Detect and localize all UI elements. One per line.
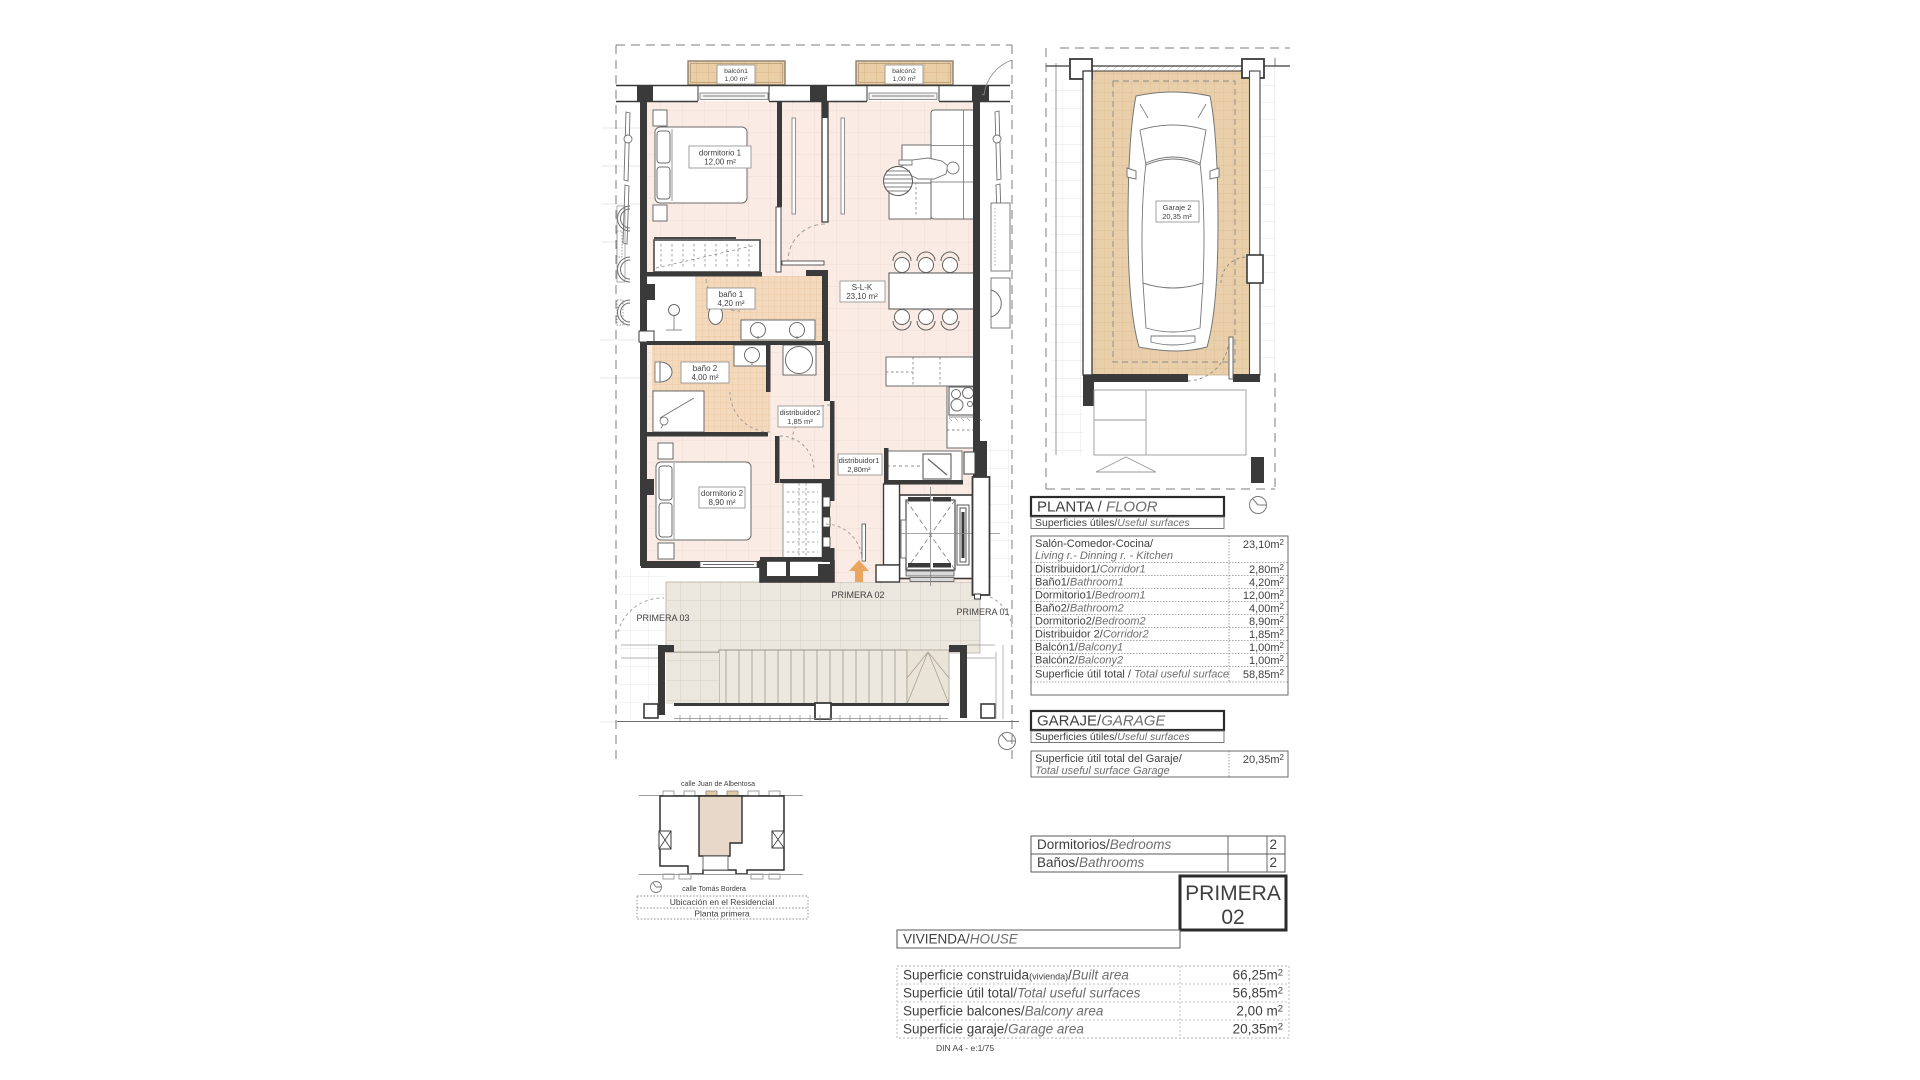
svg-text:calle Tomás Bordera: calle Tomás Bordera — [682, 886, 746, 893]
svg-text:Dormitorio1/Bedroom1: Dormitorio1/Bedroom1 — [1035, 590, 1146, 602]
svg-text:Salón-Comedor-Cocina/: Salón-Comedor-Cocina/ — [1035, 538, 1154, 550]
svg-text:Balcón1/Balcony1: Balcón1/Balcony1 — [1035, 642, 1123, 654]
svg-text:dormitorio 1: dormitorio 1 — [699, 149, 742, 158]
svg-text:Superficie útil total/Total us: Superficie útil total/Total useful surfa… — [903, 986, 1141, 1001]
svg-text:Balcón2/Balcony2: Balcón2/Balcony2 — [1035, 655, 1123, 667]
svg-text:Dormitorio2/Bedroom2: Dormitorio2/Bedroom2 — [1035, 616, 1146, 628]
svg-text:Distribuidor1/Corridor1: Distribuidor1/Corridor1 — [1035, 564, 1146, 576]
svg-text:23,10 m²: 23,10 m² — [846, 292, 878, 301]
svg-text:baño 1: baño 1 — [719, 290, 744, 299]
svg-text:1,85 m²: 1,85 m² — [787, 417, 813, 426]
svg-text:GARAJE/GARAGE: GARAJE/GARAGE — [1037, 713, 1166, 730]
svg-text:4,20m2: 4,20m2 — [1249, 576, 1285, 589]
svg-text:66,25m2: 66,25m2 — [1233, 968, 1283, 983]
svg-text:Superficie útil total / Total: Superficie útil total / Total useful sur… — [1035, 669, 1229, 681]
svg-text:8,90 m²: 8,90 m² — [708, 498, 735, 507]
svg-text:02: 02 — [1221, 906, 1244, 929]
svg-text:Living r.- Dinning r. - Kitche: Living r.- Dinning r. - Kitchen — [1035, 550, 1173, 562]
svg-text:PRIMERA 02: PRIMERA 02 — [831, 590, 884, 600]
svg-text:calle Juan de Albentosa: calle Juan de Albentosa — [681, 781, 755, 788]
svg-text:56,85m2: 56,85m2 — [1233, 986, 1283, 1001]
svg-text:Total useful surface Garage: Total useful surface Garage — [1035, 765, 1170, 777]
svg-text:S-L-K: S-L-K — [852, 283, 873, 292]
svg-text:Dormitorios/Bedrooms: Dormitorios/Bedrooms — [1037, 837, 1172, 852]
svg-text:Baños/Bathrooms: Baños/Bathrooms — [1037, 855, 1145, 870]
svg-text:1,00m2: 1,00m2 — [1249, 641, 1285, 654]
svg-text:Superficie balcones/Balcony ar: Superficie balcones/Balcony area — [903, 1004, 1104, 1019]
svg-text:23,10m2: 23,10m2 — [1243, 538, 1285, 551]
svg-text:1,00 m²: 1,00 m² — [724, 76, 748, 83]
svg-text:PRIMERA 01: PRIMERA 01 — [956, 607, 1009, 617]
svg-text:8,90m2: 8,90m2 — [1249, 615, 1285, 628]
svg-text:Baño2/Bathroom2: Baño2/Bathroom2 — [1035, 603, 1124, 615]
svg-text:PRIMERA: PRIMERA — [1185, 882, 1281, 905]
svg-text:1,00 m²: 1,00 m² — [892, 76, 916, 83]
svg-text:Distribuidor 2/Corridor2: Distribuidor 2/Corridor2 — [1035, 629, 1149, 641]
svg-text:20,35m2: 20,35m2 — [1243, 753, 1285, 766]
svg-text:2: 2 — [1269, 855, 1277, 870]
svg-text:balcón1: balcón1 — [724, 68, 748, 75]
svg-text:distribuidor2: distribuidor2 — [780, 408, 821, 417]
svg-text:2,80m²: 2,80m² — [847, 465, 871, 474]
svg-text:Baño1/Bathroom1: Baño1/Bathroom1 — [1035, 577, 1124, 589]
svg-text:Planta primera: Planta primera — [694, 909, 750, 919]
svg-text:20,35 m²: 20,35 m² — [1162, 212, 1192, 221]
svg-text:distribuidor1: distribuidor1 — [839, 456, 880, 465]
svg-text:4,00m2: 4,00m2 — [1249, 602, 1285, 615]
svg-text:Superficies útiles/Useful surf: Superficies útiles/Useful surfaces — [1035, 517, 1190, 529]
svg-text:4,00 m²: 4,00 m² — [691, 373, 718, 382]
svg-text:DIN A4 - e:1/75: DIN A4 - e:1/75 — [936, 1043, 994, 1053]
svg-text:2,00 m2: 2,00 m2 — [1236, 1004, 1283, 1019]
svg-text:12,00m2: 12,00m2 — [1243, 589, 1285, 602]
svg-text:VIVIENDA/HOUSE: VIVIENDA/HOUSE — [903, 932, 1019, 947]
svg-text:Garaje 2: Garaje 2 — [1163, 203, 1192, 212]
svg-text:dormitorio 2: dormitorio 2 — [701, 489, 744, 498]
svg-text:4,20 m²: 4,20 m² — [717, 299, 744, 308]
svg-text:12,00 m²: 12,00 m² — [704, 158, 736, 167]
svg-text:PRIMERA 03: PRIMERA 03 — [636, 613, 689, 623]
svg-text:Superficie útil total del Gara: Superficie útil total del Garaje/ — [1035, 753, 1183, 765]
svg-text:PLANTA / FLOOR: PLANTA / FLOOR — [1037, 499, 1158, 516]
svg-text:Superficie construida(vivienda: Superficie construida(vivienda)/Built ar… — [903, 968, 1129, 983]
svg-text:Ubicación en el Residencial: Ubicación en el Residencial — [670, 897, 775, 907]
svg-text:2,80m2: 2,80m2 — [1249, 563, 1285, 576]
svg-text:20,35m2: 20,35m2 — [1233, 1022, 1283, 1037]
svg-text:1,85m2: 1,85m2 — [1249, 628, 1285, 641]
svg-text:2: 2 — [1269, 837, 1277, 852]
svg-text:Superficies útiles/Useful surf: Superficies útiles/Useful surfaces — [1035, 731, 1190, 743]
svg-text:balcón2: balcón2 — [892, 68, 916, 75]
svg-text:1,00m2: 1,00m2 — [1249, 654, 1285, 667]
svg-text:baño 2: baño 2 — [693, 364, 718, 373]
svg-text:Superficie garaje/Garage area: Superficie garaje/Garage area — [903, 1022, 1084, 1037]
svg-text:58,85m2: 58,85m2 — [1243, 668, 1285, 681]
